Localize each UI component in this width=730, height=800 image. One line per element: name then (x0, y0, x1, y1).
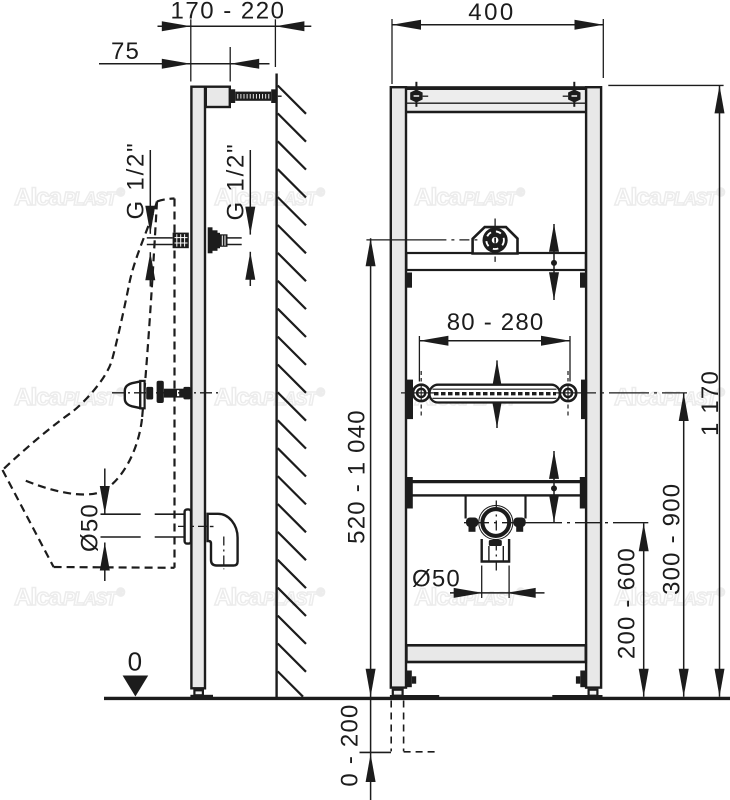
svg-text:AlcaPLAST®: AlcaPLAST® (14, 184, 125, 211)
svg-text:0: 0 (128, 647, 144, 677)
svg-text:170 - 220: 170 - 220 (171, 0, 286, 25)
svg-text:0 - 200: 0 - 200 (337, 703, 364, 786)
svg-text:G 1/2": G 1/2" (123, 141, 150, 219)
svg-text:400: 400 (468, 0, 516, 26)
svg-text:80 - 280: 80 - 280 (447, 309, 545, 336)
svg-text:200 - 600: 200 - 600 (614, 547, 641, 659)
svg-text:Ø50: Ø50 (77, 503, 104, 552)
svg-text:G 1/2": G 1/2" (223, 142, 250, 220)
svg-text:75: 75 (111, 38, 140, 65)
svg-text:520 - 1 040: 520 - 1 040 (344, 409, 371, 544)
svg-text:Ø50: Ø50 (412, 566, 461, 593)
svg-text:300 - 900: 300 - 900 (659, 483, 686, 595)
